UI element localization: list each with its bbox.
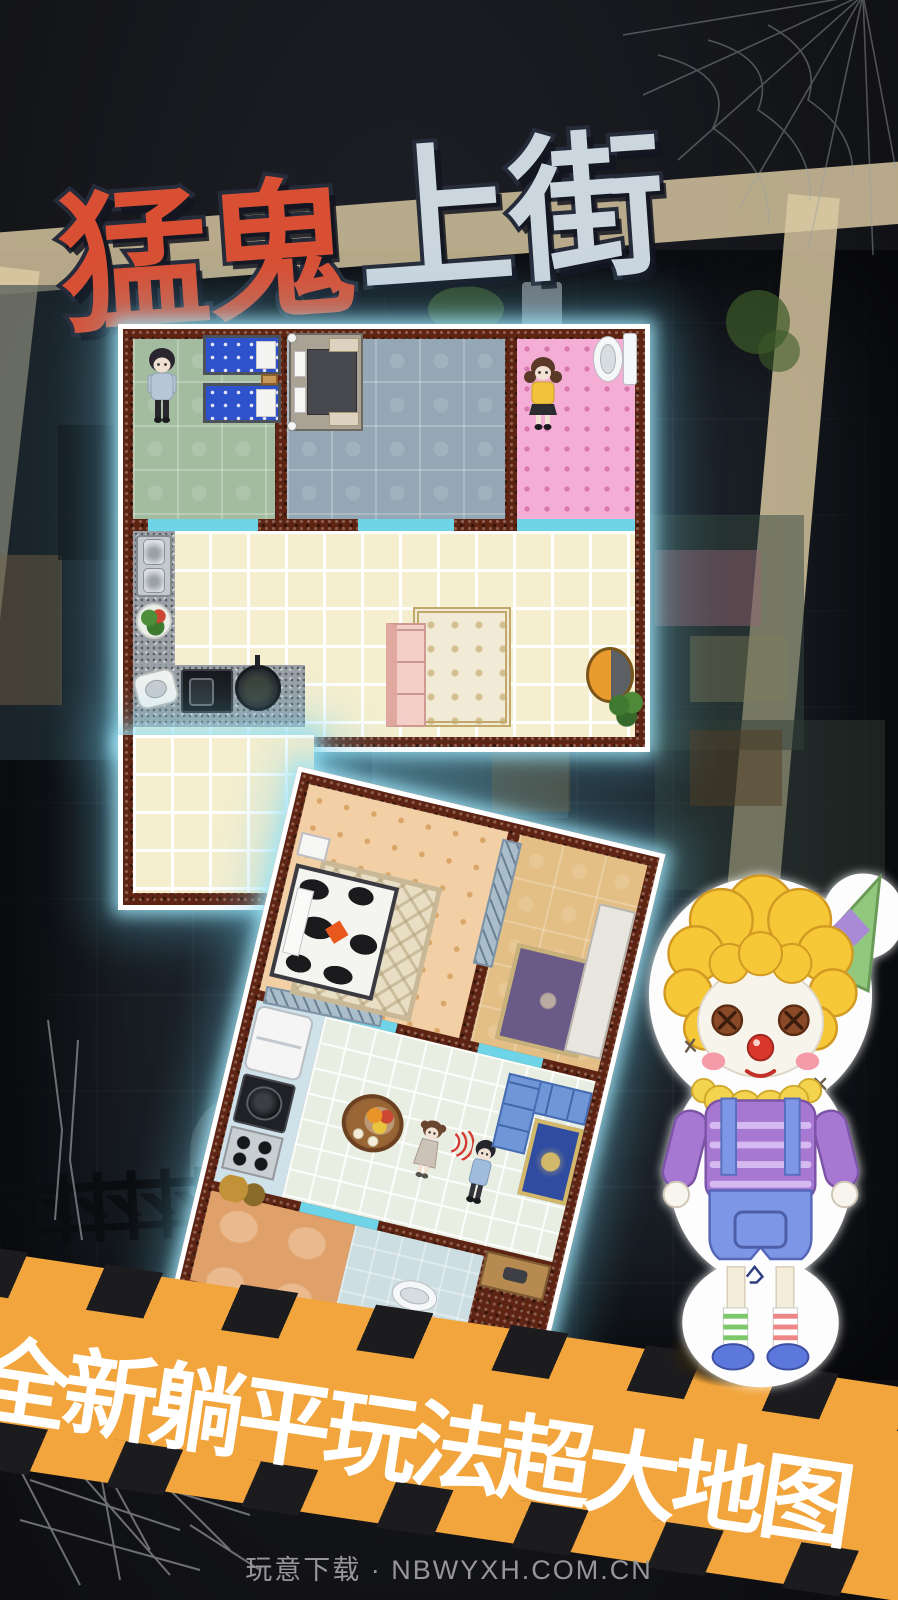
boy-character bbox=[145, 347, 179, 425]
bed-knob bbox=[287, 333, 297, 343]
clown-character bbox=[623, 848, 898, 1396]
pillow bbox=[294, 387, 306, 413]
bed-knob bbox=[287, 421, 297, 431]
dim-room-pink bbox=[655, 550, 761, 626]
side-table bbox=[329, 412, 359, 426]
dim-wood-floor bbox=[690, 730, 782, 806]
frying-pan bbox=[235, 665, 281, 711]
pillow bbox=[256, 389, 276, 417]
dim-bed-dark bbox=[58, 425, 114, 560]
living-rug bbox=[413, 607, 511, 727]
nightstand bbox=[261, 374, 278, 385]
vegetable-plate bbox=[136, 603, 172, 639]
floor-plan-1 bbox=[118, 324, 650, 752]
download-site-text: 玩意下载 · NBWYXH.COM.CN bbox=[0, 1548, 898, 1587]
door-strip bbox=[148, 519, 258, 531]
door-strip bbox=[358, 519, 454, 531]
door-strip bbox=[517, 519, 635, 531]
gas-stove bbox=[181, 669, 233, 713]
pink-sofa bbox=[386, 623, 426, 727]
toilet-tank bbox=[623, 333, 637, 385]
dim-room-sand bbox=[690, 636, 786, 702]
toilet-bowl bbox=[593, 336, 623, 382]
master-bed bbox=[289, 333, 363, 431]
blanket bbox=[307, 349, 357, 415]
kid-bed bbox=[203, 335, 281, 375]
title-part-silver: 上街 bbox=[352, 118, 667, 313]
kid-bed bbox=[203, 383, 281, 423]
pillow bbox=[256, 341, 276, 369]
plate bbox=[366, 1135, 379, 1148]
food bbox=[362, 1104, 397, 1138]
pillow bbox=[294, 351, 306, 377]
blanket-diamond bbox=[325, 921, 348, 944]
tree-part bbox=[758, 330, 800, 372]
dim-room-tan bbox=[0, 555, 62, 705]
toilet bbox=[593, 333, 637, 385]
plant bbox=[609, 691, 643, 727]
side-table bbox=[329, 338, 359, 352]
girl-character bbox=[523, 355, 563, 431]
kitchen-sink bbox=[136, 535, 172, 597]
pillow bbox=[282, 888, 314, 957]
plate bbox=[352, 1127, 365, 1140]
promo-poster: 猛鬼上街 bbox=[0, 0, 898, 1600]
